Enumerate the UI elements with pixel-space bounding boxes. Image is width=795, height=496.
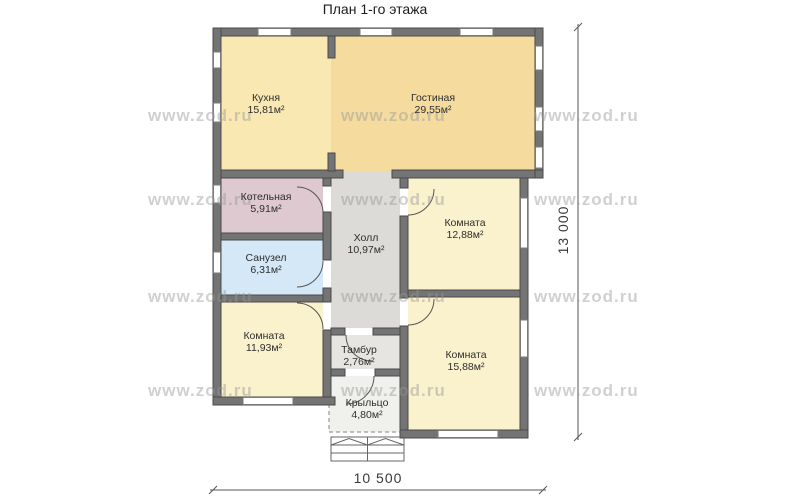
room-area: 4,80м²	[346, 409, 389, 421]
room-label-tambour: Тамбур 2,76м²	[341, 344, 377, 368]
window	[521, 320, 528, 357]
step-diagonal	[368, 439, 405, 446]
room-name: Комната	[445, 349, 486, 361]
wall-segment	[373, 328, 400, 335]
room-area: 29,55м²	[411, 104, 455, 116]
room-name: Холл	[348, 232, 385, 244]
room-label-bathroom: Санузел 6,31м²	[246, 252, 287, 276]
dimension-height-label: 13 000	[555, 206, 571, 255]
wall-segment	[408, 290, 520, 297]
room-area: 15,88м²	[445, 361, 486, 373]
wall-segment	[221, 233, 323, 240]
wall-segment	[392, 170, 535, 178]
room-area: 2,76м²	[341, 356, 377, 368]
wall-segment	[323, 178, 331, 186]
entrance-steps	[331, 437, 404, 461]
wall-segment	[328, 36, 335, 58]
room-name: Крыльцо	[346, 397, 389, 409]
room-area: 10,97м²	[348, 244, 385, 256]
wall-segment	[221, 170, 343, 178]
room-area: 5,91м²	[241, 203, 292, 215]
room-name: Котельная	[241, 191, 292, 203]
room-label-kitchen: Кухня 15,81м²	[248, 92, 285, 116]
floor-plan-drawing	[0, 0, 795, 496]
floor-plan-page: www.zod.ru www.zod.ru www.zod.ru www.zod…	[0, 0, 795, 496]
window	[243, 398, 293, 405]
room-label-living: Гостиная 29,55м²	[411, 92, 455, 116]
dimension-width-label: 10 500	[354, 470, 403, 486]
window	[214, 185, 221, 203]
room-label-porch: Крыльцо 4,80м²	[346, 397, 389, 421]
window	[438, 431, 498, 438]
room-name: Санузел	[246, 252, 287, 264]
window	[460, 29, 493, 36]
room-label-boiler: Котельная 5,91м²	[241, 191, 292, 215]
window	[214, 103, 221, 122]
window	[536, 147, 543, 168]
wall-segment	[323, 288, 331, 302]
window	[360, 29, 392, 36]
wall-segment	[221, 295, 323, 302]
room-area: 11,93м²	[243, 342, 284, 354]
room-name: Комната	[444, 217, 485, 229]
window	[214, 52, 221, 68]
window	[258, 29, 291, 36]
room-name: Кухня	[248, 92, 285, 104]
room-label-hall: Холл 10,97м²	[348, 232, 385, 256]
wall-segment	[400, 178, 408, 188]
wall-segment	[328, 153, 335, 171]
room-area: 6,31м²	[246, 264, 287, 276]
wall-segment	[213, 28, 221, 405]
room-label-room-1: Комната 12,88м²	[444, 217, 485, 241]
room-label-room-3: Комната 15,88м²	[445, 349, 486, 373]
step-diagonal	[331, 439, 368, 446]
wall-segment	[400, 326, 408, 430]
wall-segment	[331, 328, 345, 335]
room-name: Гостиная	[411, 92, 455, 104]
window	[536, 46, 543, 70]
room-area: 15,81м²	[248, 104, 285, 116]
window	[521, 198, 528, 248]
wall-segment	[331, 369, 345, 376]
room-label-room-2: Комната 11,93м²	[243, 330, 284, 354]
wall-segment	[400, 216, 408, 298]
wall-segment	[375, 369, 400, 376]
room-area: 12,88м²	[444, 229, 485, 241]
window	[536, 107, 543, 131]
window	[214, 252, 221, 273]
room-name: Комната	[243, 330, 284, 342]
room-name: Тамбур	[341, 344, 377, 356]
page-title: План 1-го этажа	[323, 1, 428, 17]
wall-segment	[323, 212, 331, 260]
wall-segment	[323, 330, 331, 397]
